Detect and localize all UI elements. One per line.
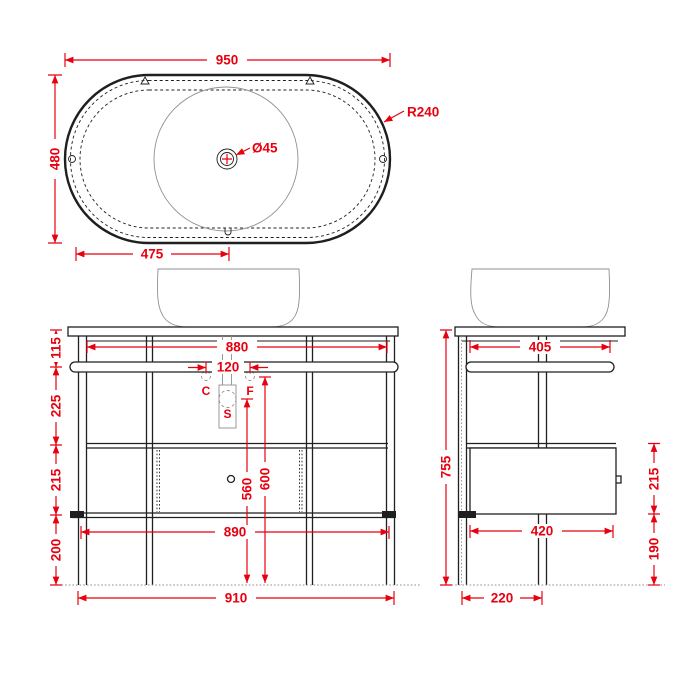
front-view: 880 115 225 215 200 120 C F S: [49, 269, 421, 606]
callout-drain-diameter: Ø45: [236, 141, 278, 156]
dim-label-shelf-to-frame: 215: [49, 468, 64, 491]
dim-label-connector-spacing: 120: [217, 360, 240, 375]
frame-cap-right: [382, 511, 396, 518]
dim-box-height: 215: [647, 444, 662, 515]
countertop-side: [455, 327, 625, 336]
dim-label-overall-height: 755: [439, 455, 454, 478]
dim-height-chain: 115 225 215 200: [49, 330, 64, 585]
dim-box-depth: 420: [470, 524, 613, 539]
frame-cap-left: [70, 511, 84, 518]
dim-top-depth: 405: [470, 340, 610, 355]
label-hot-connector: F: [246, 384, 253, 398]
dim-label-overall-width: 910: [225, 591, 248, 606]
storage-box-side: [470, 448, 616, 514]
drawer-runners: [157, 450, 302, 512]
dim-label-frame-width: 890: [224, 525, 247, 540]
dim-label-top-depth: 405: [529, 340, 552, 355]
towel-rail-side: [466, 362, 614, 372]
drawer-knob: [228, 476, 235, 483]
mid-shelf-side: [467, 444, 616, 449]
callout-corner-radius: R240: [384, 105, 439, 123]
dim-label-frame-to-floor: 200: [49, 539, 64, 562]
side-hole-right: [380, 156, 387, 163]
frame-cap-side: [458, 511, 476, 518]
technical-drawing: 950 480 475 R240 Ø45: [0, 0, 700, 700]
dim-label-top-depth: 480: [48, 148, 63, 171]
dim-overall-width: 910: [78, 591, 394, 606]
dim-siphon-height: 560: [240, 399, 255, 583]
side-view: 755 405 215 190 420: [439, 269, 666, 606]
dim-inner-width: 880: [87, 340, 387, 355]
dim-top-width: 950: [65, 53, 390, 68]
dim-label-box-to-floor: 190: [647, 538, 662, 561]
lower-frame-front: [72, 513, 394, 518]
dim-frame-width: 890: [81, 525, 389, 540]
label-cold-connector: C: [202, 384, 211, 398]
dim-box-to-floor: 190: [647, 514, 662, 585]
dim-label-connector-height: 600: [258, 468, 273, 491]
dim-label-counter-to-rail: 115: [49, 337, 64, 359]
dim-leg-spacing: 220: [462, 591, 542, 606]
mid-shelf-front: [86, 444, 388, 449]
dim-top-depth: 480: [48, 75, 63, 243]
dim-label-top-width: 950: [216, 53, 239, 68]
dim-label-leg-spacing: 220: [491, 591, 514, 606]
top-view: 950 480 475 R240 Ø45: [48, 53, 440, 262]
basin-front: [157, 269, 299, 327]
dim-label-box-height: 215: [647, 467, 662, 490]
dim-label-inner-width: 880: [226, 340, 249, 355]
label-siphon: S: [223, 407, 231, 421]
dim-overall-height: 755: [439, 330, 454, 585]
side-hole-left: [69, 156, 76, 163]
dim-label-siphon-height: 560: [240, 478, 255, 501]
basin-side: [471, 269, 610, 327]
dim-label-box-depth: 420: [531, 524, 554, 539]
dim-label-rail-to-shelf: 225: [49, 394, 64, 417]
box-knob: [616, 476, 621, 483]
dim-label-drain-diameter: Ø45: [252, 141, 278, 156]
dim-label-drain-offset: 475: [141, 247, 164, 262]
dim-label-corner-radius: R240: [407, 105, 439, 120]
drain-center-mark: [222, 154, 232, 164]
dim-drain-offset: 475: [76, 247, 229, 262]
dim-connector-height: 600: [258, 377, 273, 583]
countertop-front: [68, 327, 398, 336]
front-tab-mark: [225, 228, 231, 235]
